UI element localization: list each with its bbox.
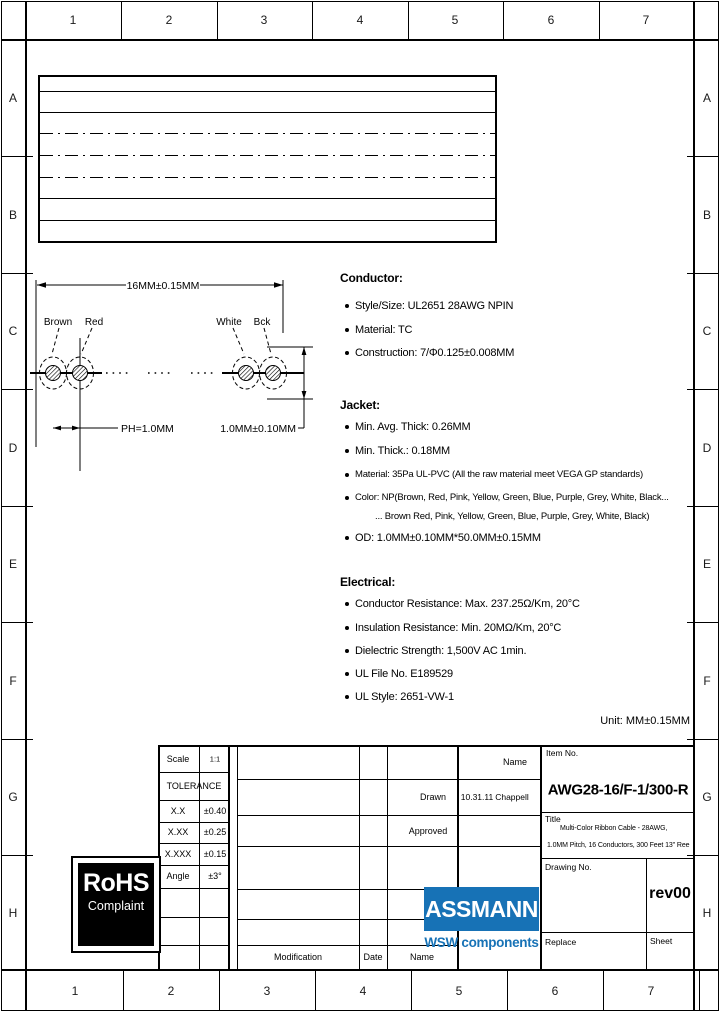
jacket-section-title: Jacket:: [340, 398, 380, 412]
tb-line: [158, 865, 230, 866]
row-label: F: [9, 674, 16, 688]
scale-label: Scale: [167, 754, 190, 764]
replace-label: Replace: [545, 937, 576, 947]
col-divider: [123, 971, 124, 1011]
spec-line: Dielectric Strength: 1,500V AC 1min.: [344, 645, 526, 657]
cable-centerline: [40, 155, 495, 156]
tb-line: [158, 888, 230, 889]
spec-line: OD: 1.0MM±0.10MM*50.0MM±0.15MM: [344, 532, 541, 544]
wire-label-bck: Bck: [254, 317, 272, 328]
column-label: 3: [261, 13, 268, 27]
tb-line: [540, 932, 695, 933]
row-divider: [687, 739, 719, 740]
column-label: 5: [452, 13, 459, 27]
tb-line: [158, 772, 230, 773]
row-label: H: [9, 906, 18, 920]
conductor-core: [266, 366, 281, 381]
modification-header: Modification: [274, 952, 322, 962]
row-label: G: [702, 790, 711, 804]
arrowhead-icon: [53, 426, 61, 431]
row-divider: [1, 855, 33, 856]
col-divider: [503, 1, 504, 39]
tb-line: [646, 858, 647, 970]
tolerance-row-value: ±0.25: [204, 827, 226, 837]
title-line1: Multi-Color Ribbon Cable - 28AWG,: [560, 825, 667, 832]
row-label: E: [703, 557, 711, 571]
column-label: 2: [166, 13, 173, 27]
title-line2: 1.0MM Pitch, 16 Conductors, 300 Feet 13"…: [547, 842, 689, 849]
wire-label-brown: Brown: [44, 317, 72, 328]
tb-line: [237, 815, 540, 816]
arrowhead-icon: [72, 426, 80, 431]
tolerance-row-label: X.XX: [168, 827, 189, 837]
column-label: 1: [70, 13, 77, 27]
row-label: G: [8, 790, 17, 804]
column-label: 4: [360, 984, 367, 998]
col-divider: [603, 971, 604, 1011]
conductor-core: [46, 366, 61, 381]
cable-centerline: [40, 177, 495, 178]
tolerance-row-value: ±0.40: [204, 806, 226, 816]
col-divider: [699, 971, 700, 1011]
spec-line: Insulation Resistance: Min. 20MΩ/Km, 20°…: [344, 622, 561, 634]
row-label: H: [703, 906, 712, 920]
column-label: 2: [168, 984, 175, 998]
drawing-no-label: Drawing No.: [545, 862, 592, 872]
cross-section-diagram: 16MM±0.15MM Brown Red White Bck PH=1.0MM: [30, 275, 340, 475]
drawn-name: Chappell: [495, 792, 529, 802]
spec-line: UL Style: 2651-VW-1: [344, 691, 454, 703]
tb-line: [158, 917, 230, 918]
rohs-subtitle: Complaint: [78, 899, 154, 913]
row-label: E: [9, 557, 17, 571]
row-label: B: [703, 208, 711, 222]
electrical-section-title: Electrical:: [340, 575, 395, 589]
row-label: A: [9, 91, 17, 105]
tb-line: [228, 745, 230, 970]
row-divider: [1, 273, 33, 274]
drawn-label: Drawn: [420, 792, 446, 802]
frame-top-line: [1, 39, 719, 41]
scale-value: 1:1: [210, 755, 220, 764]
spec-line: Color: NP(Brown, Red, Pink, Yellow, Gree…: [344, 492, 669, 503]
assmann-logo-subtitle: WSW components: [424, 935, 539, 950]
sheet-label: Sheet: [650, 936, 672, 946]
width-dimension-text: 16MM±0.15MM: [127, 280, 200, 292]
drawing-sheet: 1 2 3 4 5 6 7 1 2 3 4 5 6 7 A B C D E F …: [0, 0, 720, 1012]
cable-centerline: [40, 133, 495, 134]
tb-line: [158, 822, 230, 823]
tb-line: [158, 945, 230, 946]
row-divider: [1, 389, 33, 390]
row-divider: [1, 156, 33, 157]
conductor-section-title: Conductor:: [340, 271, 403, 285]
date-header: Date: [363, 952, 382, 962]
row-divider: [687, 622, 719, 623]
row-divider: [687, 389, 719, 390]
spec-line: UL File No. E189529: [344, 668, 453, 680]
row-label: F: [703, 674, 710, 688]
spec-line: Min. Avg. Thick: 0.26MM: [344, 421, 470, 433]
leader-line: [81, 328, 92, 354]
col-divider: [411, 971, 412, 1011]
spec-line: Material: TC: [344, 324, 412, 336]
name-header: Name: [410, 952, 434, 962]
row-label: A: [703, 91, 711, 105]
spec-line: Conductor Resistance: Max. 237.25Ω/Km, 2…: [344, 598, 580, 610]
tb-line: [158, 800, 230, 801]
row-divider: [1, 506, 33, 507]
column-label: 5: [456, 984, 463, 998]
rohs-title: RoHS: [78, 869, 154, 898]
cable-line: [40, 220, 495, 221]
tolerance-label: TOLERANCE: [167, 781, 222, 791]
item-no-value: AWG28-16/F-1/300-R: [548, 782, 688, 799]
ribbon-cable-drawing: [38, 75, 497, 243]
spec-line: Construction: 7/Φ0.125±0.008MM: [344, 347, 514, 359]
row-label: C: [9, 324, 18, 338]
arrowhead-icon: [302, 347, 307, 355]
tolerance-row-label: X.XXX: [165, 849, 192, 859]
column-label: 1: [72, 984, 79, 998]
tolerance-row-value: ±0.15: [204, 849, 226, 859]
tolerance-row-label: X.X: [171, 806, 186, 816]
name-column-header: Name: [503, 757, 527, 767]
arrowhead-icon: [274, 282, 283, 287]
tb-line: [540, 812, 695, 813]
col-divider: [315, 971, 316, 1011]
col-divider: [599, 1, 600, 39]
row-divider: [1, 622, 33, 623]
row-divider: [687, 273, 719, 274]
approved-label: Approved: [409, 826, 448, 836]
col-divider: [217, 1, 218, 39]
title-label: Title: [545, 814, 561, 824]
column-label: 7: [643, 13, 650, 27]
assmann-logo: ASSMANN: [424, 887, 539, 931]
row-label: C: [703, 324, 712, 338]
spec-line: Style/Size: UL2651 28AWG NPIN: [344, 300, 513, 312]
conductor-core: [239, 366, 254, 381]
column-label: 3: [264, 984, 271, 998]
column-label: 7: [648, 984, 655, 998]
column-label: 6: [548, 13, 555, 27]
cable-line: [40, 112, 495, 113]
item-no-label: Item No.: [546, 748, 578, 758]
spec-line-continuation: ... Brown Red, Pink, Yellow, Green, Blue…: [375, 511, 649, 522]
wire-label-white: White: [216, 317, 242, 328]
row-divider: [687, 156, 719, 157]
column-label: 6: [552, 984, 559, 998]
row-label: B: [9, 208, 17, 222]
leader-line: [233, 328, 244, 354]
column-label: 4: [357, 13, 364, 27]
tb-line: [237, 846, 540, 847]
col-divider: [507, 971, 508, 1011]
row-divider: [687, 506, 719, 507]
drawn-date: 10.31.11: [461, 792, 493, 802]
col-divider: [121, 1, 122, 39]
tb-line: [158, 843, 230, 844]
tb-line: [199, 745, 200, 970]
col-divider: [312, 1, 313, 39]
tb-line: [237, 779, 540, 780]
spec-line: Material: 35Pa UL-PVC (All the raw mater…: [344, 469, 643, 480]
leader-line: [264, 328, 271, 354]
row-divider: [1, 739, 33, 740]
revision-value: rev00: [649, 885, 691, 903]
leader-line: [52, 328, 59, 354]
tolerance-row-value: ±3°: [208, 871, 222, 881]
arrowhead-icon: [302, 391, 307, 399]
col-divider: [408, 1, 409, 39]
col-divider: [219, 971, 220, 1011]
spec-line: Min. Thick.: 0.18MM: [344, 445, 450, 457]
od-dimension-text: 1.0MM±0.10MM: [220, 423, 296, 435]
tb-line: [540, 858, 695, 859]
unit-note: Unit: MM±0.15MM: [600, 715, 690, 727]
cable-line: [40, 198, 495, 199]
rohs-logo: RoHS Complaint: [71, 856, 161, 953]
wire-label-red: Red: [85, 317, 103, 328]
conductor-core: [73, 366, 88, 381]
pitch-dimension-text: PH=1.0MM: [121, 423, 174, 435]
cable-line: [40, 91, 495, 92]
row-label: D: [9, 441, 18, 455]
rohs-logo-inner: RoHS Complaint: [78, 863, 154, 946]
arrowhead-icon: [37, 282, 46, 287]
tolerance-row-label: Angle: [166, 871, 189, 881]
row-label: D: [703, 441, 712, 455]
